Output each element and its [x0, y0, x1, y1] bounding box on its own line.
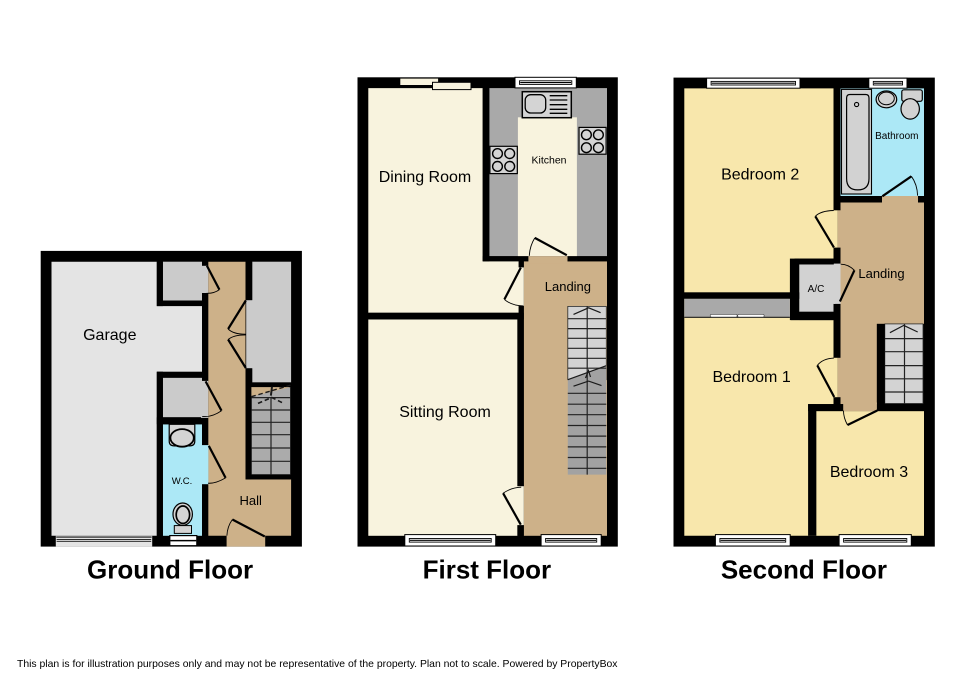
- svg-text:Kitchen: Kitchen: [531, 155, 566, 167]
- svg-text:Second Floor: Second Floor: [721, 555, 887, 585]
- svg-text:Hall: Hall: [239, 493, 262, 508]
- svg-text:First Floor: First Floor: [423, 555, 552, 585]
- svg-text:Garage: Garage: [83, 327, 136, 344]
- svg-text:Landing: Landing: [545, 279, 591, 294]
- svg-text:This plan is for illustration: This plan is for illustration purposes o…: [17, 659, 618, 670]
- svg-text:Bedroom 1: Bedroom 1: [712, 369, 790, 386]
- svg-text:A/C: A/C: [808, 284, 825, 295]
- svg-text:Bedroom 2: Bedroom 2: [721, 166, 799, 183]
- svg-text:Landing: Landing: [858, 266, 904, 281]
- svg-text:Sitting Room: Sitting Room: [399, 404, 491, 421]
- svg-text:Bedroom 3: Bedroom 3: [830, 464, 908, 481]
- svg-text:W.C.: W.C.: [172, 476, 193, 487]
- svg-text:Dining Room: Dining Room: [379, 169, 471, 186]
- svg-text:Bathroom: Bathroom: [875, 131, 918, 142]
- svg-text:Ground Floor: Ground Floor: [87, 555, 253, 585]
